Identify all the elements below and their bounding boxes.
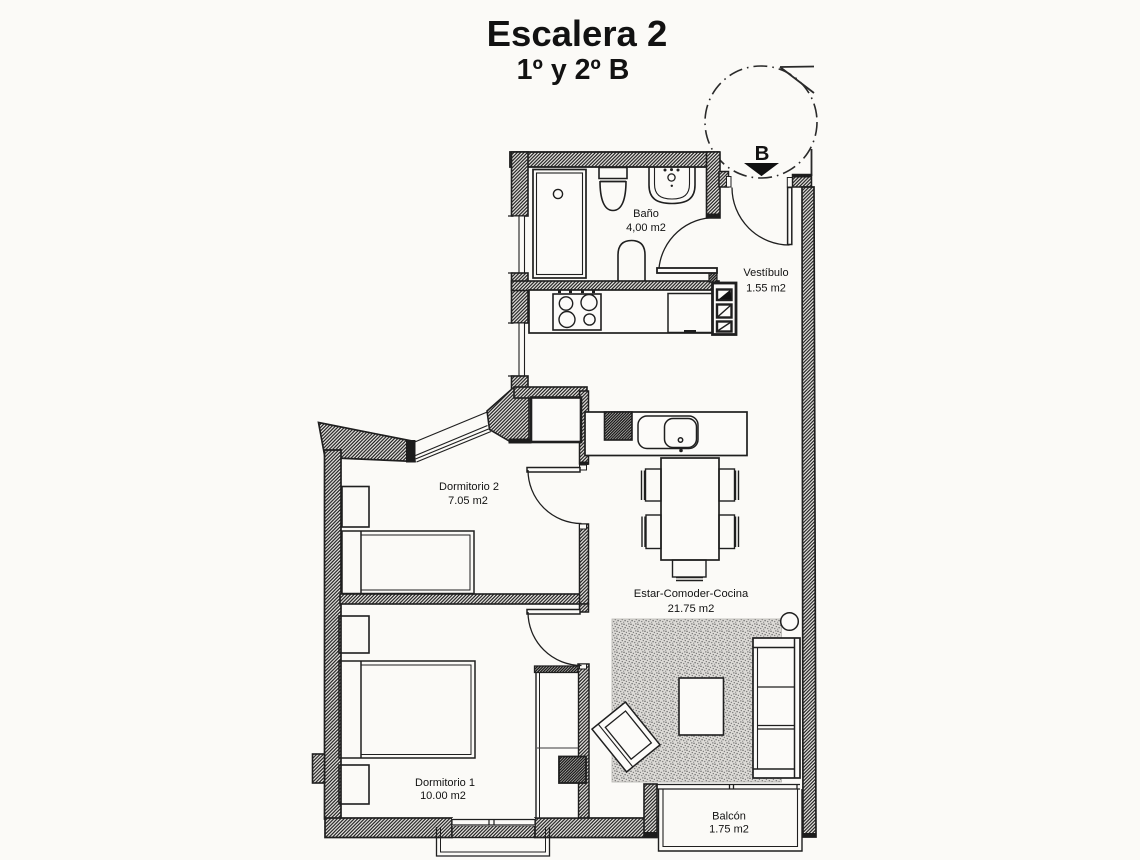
svg-text:B: B xyxy=(755,142,770,165)
svg-text:1.75 m2: 1.75 m2 xyxy=(709,824,749,836)
svg-text:Baño: Baño xyxy=(633,208,659,220)
svg-text:10.00 m2: 10.00 m2 xyxy=(420,790,466,802)
svg-text:7.05 m2: 7.05 m2 xyxy=(448,495,488,507)
svg-text:1º y 2º B: 1º y 2º B xyxy=(517,54,630,86)
svg-text:4,00 m2: 4,00 m2 xyxy=(626,222,666,234)
svg-text:Escalera 2: Escalera 2 xyxy=(487,13,668,54)
svg-text:Estar-Comoder-Cocina: Estar-Comoder-Cocina xyxy=(634,588,749,600)
svg-text:Vestíbulo: Vestíbulo xyxy=(743,267,788,279)
svg-text:1.55 m2: 1.55 m2 xyxy=(746,283,786,295)
svg-text:Dormitorio 2: Dormitorio 2 xyxy=(439,481,499,493)
svg-text:21.75 m2: 21.75 m2 xyxy=(668,603,715,615)
svg-text:Balcón: Balcón xyxy=(712,811,746,823)
svg-text:Dormitorio 1: Dormitorio 1 xyxy=(415,777,475,789)
